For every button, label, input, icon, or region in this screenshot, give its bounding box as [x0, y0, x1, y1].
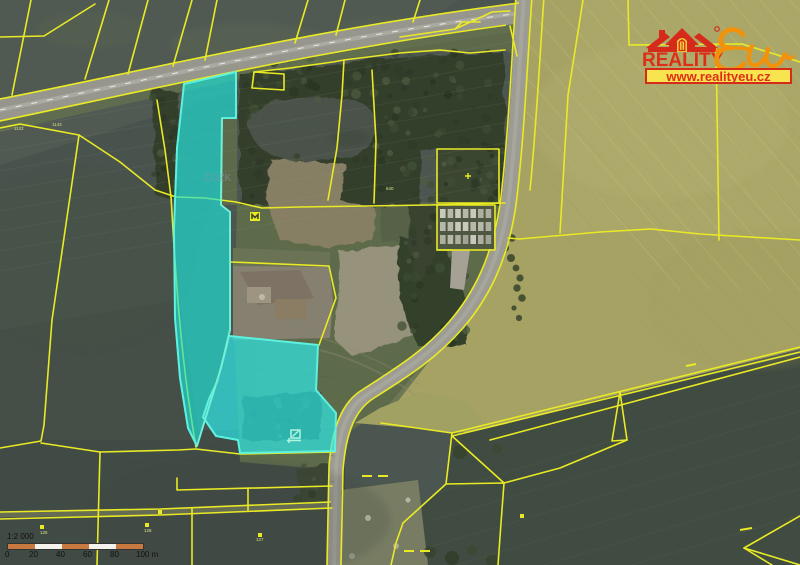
svg-text:ČÚZK: ČÚZK — [204, 171, 232, 184]
svg-text:1142: 1142 — [14, 126, 24, 131]
svg-text:127: 127 — [256, 537, 264, 542]
svg-text:640: 640 — [386, 186, 394, 191]
svg-text:1143: 1143 — [52, 122, 62, 127]
